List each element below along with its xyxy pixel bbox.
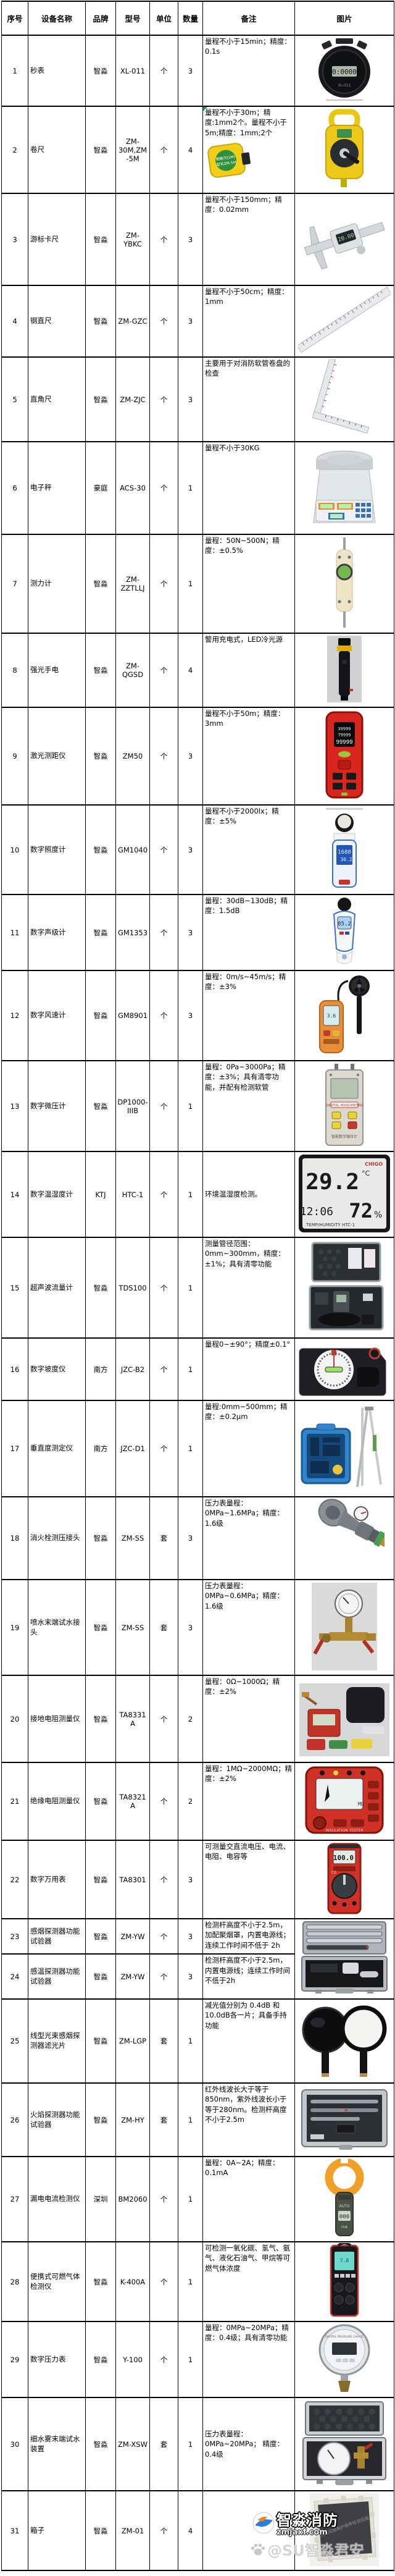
table-row: 27漏电电流检测仪深圳BM2060个1量程：0A~2A；精度：0.1mAAUTO… xyxy=(2,2157,394,2242)
cell-qty: 3 xyxy=(178,1580,203,1675)
cell-note: 量程不小于30m；精度:1mm2个。量程不小于5m;精度：1mm;2个钢卷尺(5… xyxy=(203,106,295,193)
note-text: 检测杆高度不小于2.5m，加配聚烟罩，内置电源线；连续工作时间不低于 2h xyxy=(205,1920,293,1950)
cell-photo xyxy=(295,1400,394,1497)
cell-photo: AUTO000mA xyxy=(295,2157,394,2242)
col-header-model: 型号 xyxy=(116,1,150,35)
header-row: 序号设备名称品牌型号单位数量备注图片 xyxy=(2,1,394,35)
cell-model: HTC-1 xyxy=(116,1151,150,1237)
cell-name: 绝缘电阻测量仪 xyxy=(28,1762,86,1840)
cell-name: 数字万用表 xyxy=(28,1840,86,1919)
svg-text:100.0: 100.0 xyxy=(333,1854,354,1862)
cell-qty: 3 xyxy=(178,1840,203,1919)
cell-note xyxy=(203,2491,295,2570)
note-text: 量程不小于30m；精度:1mm2个。量程不小于5m;精度：1mm;2个 xyxy=(205,107,293,138)
col-header-num: 序号 xyxy=(2,1,28,35)
cell-note: 压力表量程：0MPa~0.6MPa；精度：1.6级 xyxy=(203,1580,295,1675)
table-row: 29数字压力表智淼Y-100个1量程：0MPa~20MPa；精度：0.4级；具有… xyxy=(2,2321,394,2397)
cell-note: 可测量交直流电压、电流、电阻、电容等 xyxy=(203,1840,295,1919)
cell-note: 量程不小于50cm；精度：1mm xyxy=(203,285,295,357)
cell-model: ZM-HY xyxy=(116,2083,150,2157)
table-row: 14数字温湿度计KTJHTC-1个1环境温湿度检测。CHIGO29.2°C12:… xyxy=(2,1151,394,1237)
table-row: 4钢直尺智淼ZM-GZC个3量程不小于50cm；精度：1mm xyxy=(2,285,394,357)
svg-text:TEMP/HUMIDITY HTC-1: TEMP/HUMIDITY HTC-1 xyxy=(306,1223,355,1227)
cell-name: 数字坡度仪 xyxy=(28,1338,86,1400)
cell-qty: 1 xyxy=(178,2321,203,2397)
cell-num: 3 xyxy=(2,193,28,285)
cell-unit: 个 xyxy=(150,805,178,894)
cell-model: TA8331A xyxy=(116,1675,150,1762)
cell-brand: 智淼 xyxy=(86,1954,116,1999)
svg-text:AUTO: AUTO xyxy=(339,2204,350,2208)
cell-brand: 南方 xyxy=(86,1338,116,1400)
flashlight-photo xyxy=(322,634,367,704)
board-box-photo: 消防设施维护保养检测设备 xyxy=(307,2492,381,2567)
cell-photo xyxy=(295,442,394,534)
note-text: 压力表量程：0MPa~0.6MPa；精度：1.6级 xyxy=(205,1581,293,1611)
cell-num: 21 xyxy=(2,1762,28,1840)
cell-num: 16 xyxy=(2,1338,28,1400)
cell-unit: 个 xyxy=(150,2157,178,2242)
lux-meter-photo: 168030.2 xyxy=(322,807,367,891)
inclinometer-photo xyxy=(298,1340,391,1397)
cell-name: 线型光束感烟探测器滤光片 xyxy=(28,1999,86,2083)
svg-text:30.2: 30.2 xyxy=(340,857,352,862)
cell-qty: 1 xyxy=(178,1061,203,1151)
cell-unit: 个 xyxy=(150,1400,178,1497)
table-row: 3游标卡尺智淼ZM-YBKC个3量程不小于150mm；精度：0.02mm20.0… xyxy=(2,193,394,285)
cell-num: 15 xyxy=(2,1237,28,1338)
svg-text:MΩ: MΩ xyxy=(358,1801,364,1807)
note-text: 量程：0Pa~3000Pa；精度：±3%；具有清零功能，并配有检测软管 xyxy=(205,1062,293,1092)
svg-text:1680: 1680 xyxy=(338,849,351,856)
cell-brand: 智淼 xyxy=(86,1580,116,1675)
cell-brand: 智淼 xyxy=(86,285,116,357)
cell-brand: 智淼 xyxy=(86,35,116,106)
ruler-photo xyxy=(298,287,391,353)
table-row: 21绝缘电阻测量仪智淼TA8321A个2量程：1MΩ~2000MΩ；精度：±2%… xyxy=(2,1762,394,1840)
flow-case-photo xyxy=(301,1240,388,1333)
cell-unit: 个 xyxy=(150,894,178,970)
cell-note: 量程不小于2000lx；精度：±5% xyxy=(203,805,295,894)
cell-model: ZM-QGSD xyxy=(116,633,150,707)
cell-note: 主要用于对消防软管卷盘的检查 xyxy=(203,357,295,442)
cell-unit: 个 xyxy=(150,106,178,193)
cell-unit: 个 xyxy=(150,1237,178,1338)
cell-note: 量程：1MΩ~2000MΩ；精度：±2% xyxy=(203,1762,295,1840)
cell-brand: 智淼 xyxy=(86,2321,116,2397)
cell-num: 11 xyxy=(2,894,28,970)
cell-photo: MΩINSULATION TESTER xyxy=(295,1762,394,1840)
cell-brand: 智淼 xyxy=(86,106,116,193)
cell-unit: 套 xyxy=(150,2397,178,2491)
col-header-photo: 图片 xyxy=(295,1,394,35)
cell-num: 30 xyxy=(2,2397,28,2491)
table-row: 17垂直度测定仪南方JZC-D1个1量程:0mm~500mm；精度：±0.2μm xyxy=(2,1400,394,1497)
cell-brand: 智淼 xyxy=(86,633,116,707)
svg-text:99999: 99999 xyxy=(336,739,352,746)
table-row: 18消火栓测压接头智淼ZM-SS套3压力表量程：0MPa~1.6MPa；精度：1… xyxy=(2,1497,394,1580)
table-row: 30细水雾末端试水装置智淼ZM-XSW套1压力表量程：0MPa~20MPa； 精… xyxy=(2,2397,394,2491)
cell-name: 钢直尺 xyxy=(28,285,86,357)
cell-model: BM2060 xyxy=(116,2157,150,2242)
svg-text:3.6: 3.6 xyxy=(327,1013,336,1019)
cell-brand: 智淼 xyxy=(86,2242,116,2321)
svg-text:72: 72 xyxy=(349,1199,373,1223)
cell-model: ZM-LGP xyxy=(116,1999,150,2083)
cell-name: 感温探测器功能试验器 xyxy=(28,1954,86,1999)
cell-qty: 1 xyxy=(178,2157,203,2242)
cell-brand: 智淼 xyxy=(86,970,116,1061)
cell-name: 数字压力表 xyxy=(28,2321,86,2397)
cell-note: 减光值分别为 0.4dB 和10.0dB各一片；具备手持功能 xyxy=(203,1999,295,2083)
xsw-case-photo xyxy=(298,2399,391,2487)
table-row: 5直角尺智淼ZM-ZJC个3主要用于对消防软管卷盘的检查 xyxy=(2,357,394,442)
note-text: 主要用于对消防软管卷盘的检查 xyxy=(205,358,293,379)
cell-num: 2 xyxy=(2,106,28,193)
table-row: 9激光测距仪智淼ZM50个3量程不小于50m；精度：3mm39999799999… xyxy=(2,707,394,805)
caliper-photo: 20.00 xyxy=(300,201,389,276)
table-row: 31箱子智淼ZM-01个4消防设施维护保养检测设备 xyxy=(2,2491,394,2570)
cell-name: 电子秤 xyxy=(28,442,86,534)
note-text: 减光值分别为 0.4dB 和10.0dB各一片；具备手持功能 xyxy=(205,2000,293,2031)
table-row: 1秒表智淼XL-011个3量程不小于15min；精度：0.1s0:0000XL-… xyxy=(2,35,394,106)
cell-unit: 个 xyxy=(150,1675,178,1762)
col-header-note: 备注 xyxy=(203,1,295,35)
cell-photo: 85.2 xyxy=(295,894,394,970)
cell-qty: 2 xyxy=(178,1762,203,1840)
tape-small-photo: 钢卷尺(5M)型号ZM-5M xyxy=(205,140,253,180)
cell-name: 火焰探测器功能试验器 xyxy=(28,2083,86,2157)
col-header-brand: 品牌 xyxy=(86,1,116,35)
cell-qty: 3 xyxy=(178,1919,203,1954)
cell-note: 量程：50N~500N；精度：±0.5% xyxy=(203,534,295,633)
cell-note: 压力表量程：0MPa~20MPa； 精度：0.4级 xyxy=(203,2397,295,2491)
cell-photo: DIGITAL MANOMETER智能数字微压计 xyxy=(295,1061,394,1151)
note-text: 量程：1MΩ~2000MΩ；精度：±2% xyxy=(205,1764,293,1784)
note-text: 测量管径范围：0mm~300mm，精度：±1%；具有清零功能 xyxy=(205,1239,293,1269)
cell-qty: 3 xyxy=(178,1497,203,1580)
cell-model: ZM50 xyxy=(116,707,150,805)
filters-photo xyxy=(298,2000,391,2079)
cell-name: 垂直度测定仪 xyxy=(28,1400,86,1497)
cell-photo: 0:0000XL-011 xyxy=(295,35,394,106)
svg-text:7.8: 7.8 xyxy=(340,2258,349,2263)
cell-qty: 1 xyxy=(178,2397,203,2491)
svg-text:XL-011: XL-011 xyxy=(338,83,351,88)
cell-note: 量程不小于50m；精度：3mm xyxy=(203,707,295,805)
cell-qty: 1 xyxy=(178,534,203,633)
cell-note: 量程：0A~2A；精度：0.1mA xyxy=(203,2157,295,2242)
table-row: 25线型光束感烟探测器滤光片智淼ZM-LGP套1减光值分别为 0.4dB 和10… xyxy=(2,1999,394,2083)
cell-note: 量程：0m/s~45m/s；精度：±3% xyxy=(203,970,295,1061)
table-row: 11数字声级计智淼GM1353个3量程：30dB~130dB；精度：1.5dB8… xyxy=(2,894,394,970)
cell-brand: 智淼 xyxy=(86,1999,116,2083)
cell-brand: 智淼 xyxy=(86,805,116,894)
cell-num: 26 xyxy=(2,2083,28,2157)
cell-note: 红外线波长大于等于850nm，紫外线波长小于等于280nm。检测杆高度不小于2.… xyxy=(203,2083,295,2157)
note-text: 环境温湿度检测。 xyxy=(205,1189,293,1199)
cell-unit: 套 xyxy=(150,1580,178,1675)
cell-brand: 智淼 xyxy=(86,2491,116,2570)
cell-model: ACS-30 xyxy=(116,442,150,534)
cell-brand: 智淼 xyxy=(86,1762,116,1840)
cell-photo xyxy=(295,1675,394,1762)
table-row: 16数字坡度仪南方JZC-B2个1量程0~±90°；精度±0.1° xyxy=(2,1338,394,1400)
cell-note: 量程:0mm~500mm；精度：±0.2μm xyxy=(203,1400,295,1497)
cell-name: 数字照度计 xyxy=(28,805,86,894)
cell-name: 激光测距仪 xyxy=(28,707,86,805)
cell-model: GM1353 xyxy=(116,894,150,970)
table-row: 15超声波流量计智淼TDS100个1测量管径范围：0mm~300mm，精度：±1… xyxy=(2,1237,394,1338)
note-text: 量程：0MPa~20MPa；精度：0.4级；具有清零功能 xyxy=(205,2323,293,2343)
table-row: 22数字万用表智淼TA8301个3可测量交直流电压、电流、电阻、电容等100.0… xyxy=(2,1840,394,1919)
cell-photo xyxy=(295,633,394,707)
cell-model: GM8901 xyxy=(116,970,150,1061)
cell-photo: 3.6 xyxy=(295,970,394,1061)
cell-brand: 智淼 xyxy=(86,534,116,633)
cell-qty: 4 xyxy=(178,633,203,707)
note-text: 量程不小于30KG xyxy=(205,443,293,453)
cell-brand: KTJ xyxy=(86,1151,116,1237)
cell-unit: 个 xyxy=(150,1338,178,1400)
cell-note: 检测杆高度不小于2.5m，加配聚烟罩，内置电源线；连续工作时间不低于 2h xyxy=(203,1919,295,1954)
note-text: 量程不小于50cm；精度：1mm xyxy=(205,287,293,307)
table-row: 28便携式可燃气体检测仪智淼K-400A个1可检测一氧化碳、氢气、氨气、液化石油… xyxy=(2,2242,394,2321)
cell-num: 18 xyxy=(2,1497,28,1580)
cell-model: JZC-B2 xyxy=(116,1338,150,1400)
cell-qty: 1 xyxy=(178,1400,203,1497)
cell-note: 压力表量程：0MPa~1.6MPa；精度：1.6级 xyxy=(203,1497,295,1580)
note-text: 压力表量程：0MPa~1.6MPa；精度：1.6级 xyxy=(205,1498,293,1528)
cell-unit: 个 xyxy=(150,442,178,534)
cell-photo: 消防设施维护保养检测设备 xyxy=(295,2491,394,2570)
cell-num: 4 xyxy=(2,285,28,357)
cell-name: 强光手电 xyxy=(28,633,86,707)
cell-unit: 个 xyxy=(150,285,178,357)
cell-name: 卷尺 xyxy=(28,106,86,193)
cell-photo: DIGITAL PRESSURE GAUGE xyxy=(295,2321,394,2397)
table-row: 12数字风速计智淼GM8901个3量程：0m/s~45m/s；精度：±3%3.6 xyxy=(2,970,394,1061)
svg-text:INSULATION TESTER: INSULATION TESTER xyxy=(325,1829,363,1833)
cell-model: JZC-D1 xyxy=(116,1400,150,1497)
cell-num: 28 xyxy=(2,2242,28,2321)
cell-note: 量程不小于150mm；精度：0.02mm xyxy=(203,193,295,285)
vertical-kit-photo xyxy=(298,1404,391,1491)
cell-qty: 1 xyxy=(178,2242,203,2321)
cell-photo: 100.0CE xyxy=(295,1840,394,1919)
cell-num: 1 xyxy=(2,35,28,106)
note-text: 红外线波长大于等于850nm，紫外线波长小于等于280nm。检测杆高度不小于2.… xyxy=(205,2084,293,2124)
cell-unit: 个 xyxy=(150,707,178,805)
cell-unit: 个 xyxy=(150,633,178,707)
cell-brand: 深圳 xyxy=(86,2157,116,2242)
svg-text:CE: CE xyxy=(331,1871,336,1875)
cell-qty: 4 xyxy=(178,2491,203,2570)
svg-text:DIGITAL PRESSURE GAUGE: DIGITAL PRESSURE GAUGE xyxy=(325,2335,364,2339)
tape-reel-photo xyxy=(315,109,374,189)
svg-text:85.2: 85.2 xyxy=(338,921,351,927)
note-text: 警用充电式，LED冷光源 xyxy=(205,634,293,644)
cell-unit: 个 xyxy=(150,2321,178,2397)
cell-model: TDS100 xyxy=(116,1237,150,1338)
table-row: 13数字微压计智淼DP1000-IIIB个1量程：0Pa~3000Pa；精度：±… xyxy=(2,1061,394,1151)
square-ruler-photo xyxy=(303,359,386,438)
cell-photo: 168030.2 xyxy=(295,805,394,894)
note-text: 量程：0m/s~45m/s；精度：±3% xyxy=(205,972,293,992)
cell-unit: 个 xyxy=(150,2491,178,2570)
table-row: 10数字照度计智淼GM1040个3量程不小于2000lx；精度：±5%16803… xyxy=(2,805,394,894)
cell-num: 5 xyxy=(2,357,28,442)
cell-model: ZM-ZJC xyxy=(116,357,150,442)
cell-model: ZM-SS xyxy=(116,1497,150,1580)
cell-model: ZM-01 xyxy=(116,2491,150,2570)
cell-model: ZM-YW xyxy=(116,1954,150,1999)
clamp-meter-photo: AUTO000mA xyxy=(317,2158,372,2238)
cell-qty: 3 xyxy=(178,970,203,1061)
table-row: 8强光手电智淼ZM-QGSD个4警用充电式，LED冷光源 xyxy=(2,633,394,707)
micro-pressure-photo: DIGITAL MANOMETER智能数字微压计 xyxy=(315,1063,373,1148)
cell-unit: 个 xyxy=(150,193,178,285)
cell-name: 消火栓测压接头 xyxy=(28,1497,86,1580)
cell-brand: 智淼 xyxy=(86,1840,116,1919)
cell-model: ZM-SS xyxy=(116,1580,150,1675)
cell-name: 数字微压计 xyxy=(28,1061,86,1151)
note-text: 量程不小于50m；精度：3mm xyxy=(205,709,293,729)
cell-name: 喷水末端试水接头 xyxy=(28,1580,86,1675)
cell-photo xyxy=(295,534,394,633)
cell-name: 直角尺 xyxy=(28,357,86,442)
cell-name: 漏电电流检测仪 xyxy=(28,2157,86,2242)
cell-num: 8 xyxy=(2,633,28,707)
note-text: 检测杆高度不小于2.5m，内置电源线；连续工作时间不低于2h xyxy=(205,1955,293,1985)
cell-unit: 个 xyxy=(150,1762,178,1840)
cell-brand: 智淼 xyxy=(86,1919,116,1954)
cell-unit: 个 xyxy=(150,357,178,442)
cell-model: ZM-30M,ZM-5M xyxy=(116,106,150,193)
svg-text:39999: 39999 xyxy=(338,726,351,731)
cell-brand: 豪庭 xyxy=(86,442,116,534)
cell-name: 游标卡尺 xyxy=(28,193,86,285)
cell-model: ZM-GZC xyxy=(116,285,150,357)
table-row: 2卷尺智淼ZM-30M,ZM-5M个4量程不小于30m；精度:1mm2个。量程不… xyxy=(2,106,394,193)
cell-name: 细水雾末端试水装置 xyxy=(28,2397,86,2491)
cell-photo: 7.8 xyxy=(295,2242,394,2321)
note-text: 量程：30dB~130dB；精度：1.5dB xyxy=(205,896,293,916)
multimeter-photo: 100.0CE xyxy=(321,1842,368,1916)
svg-text:0:0000: 0:0000 xyxy=(332,68,357,76)
svg-text:%: % xyxy=(374,1210,382,1220)
cell-note: 环境温湿度检测。 xyxy=(203,1151,295,1237)
cell-model: TA8301 xyxy=(116,1840,150,1919)
cell-model: Y-100 xyxy=(116,2321,150,2397)
cell-model: K-400A xyxy=(116,2242,150,2321)
cell-unit: 套 xyxy=(150,1497,178,1580)
cell-model: ZM-YW xyxy=(116,1919,150,1954)
cell-note: 量程：0MPa~20MPa；精度：0.4级；具有清零功能 xyxy=(203,2321,295,2397)
cell-model: TA8321A xyxy=(116,1762,150,1840)
cell-photo xyxy=(295,1580,394,1675)
cell-qty: 3 xyxy=(178,894,203,970)
cell-photo xyxy=(295,357,394,442)
note-text: 量程不小于15min；精度：0.1s xyxy=(205,36,293,57)
cell-num: 20 xyxy=(2,1675,28,1762)
cell-unit: 个 xyxy=(150,1151,178,1237)
cell-qty: 1 xyxy=(178,1999,203,2083)
scale-photo xyxy=(307,444,381,530)
stopwatch-photo: 0:0000XL-011 xyxy=(317,37,372,103)
cell-note: 量程：0Pa~3000Pa；精度：±3%；具有清零功能，并配有检测软管 xyxy=(203,1061,295,1151)
cell-note: 量程：30dB~130dB；精度：1.5dB xyxy=(203,894,295,970)
cell-brand: 智淼 xyxy=(86,707,116,805)
sound-meter-photo: 85.2 xyxy=(324,896,365,967)
cell-num: 31 xyxy=(2,2491,28,2570)
cell-unit: 套 xyxy=(150,1999,178,2083)
cell-num: 23 xyxy=(2,1919,28,1954)
cell-name: 箱子 xyxy=(28,2491,86,2570)
table-row: 26火焰探测器功能试验器智淼ZM-HY套1红外线波长大于等于850nm，紫外线波… xyxy=(2,2083,394,2157)
cell-photo xyxy=(295,106,394,193)
svg-text:79999: 79999 xyxy=(338,733,351,738)
cell-brand: 智淼 xyxy=(86,1675,116,1762)
cell-model: ZM-XSW xyxy=(116,2397,150,2491)
cell-photo xyxy=(295,1497,394,1580)
note-text: 量程不小于2000lx；精度：±5% xyxy=(205,806,293,827)
cell-num: 22 xyxy=(2,1840,28,1919)
svg-text:12:06: 12:06 xyxy=(300,1205,333,1218)
anemometer-photo: 3.6 xyxy=(310,972,379,1056)
cell-qty: 1 xyxy=(178,1338,203,1400)
note-text: 量程不小于150mm；精度：0.02mm xyxy=(205,195,293,215)
cell-name: 感烟探测器功能试验器 xyxy=(28,1919,86,1954)
cell-photo xyxy=(295,1919,394,1999)
cell-qty: 3 xyxy=(178,193,203,285)
cell-model: DP1000-IIIB xyxy=(116,1061,150,1151)
svg-text:智能数字微压计: 智能数字微压计 xyxy=(331,1134,357,1139)
cell-qty: 3 xyxy=(178,707,203,805)
note-text: 量程:0mm~500mm；精度：±0.2μm xyxy=(205,1402,293,1422)
note-text: 量程：50N~500N；精度：±0.5% xyxy=(205,536,293,556)
cell-note: 量程0~±90°；精度±0.1° xyxy=(203,1338,295,1400)
equipment-table: 序号设备名称品牌型号单位数量备注图片 1秒表智淼XL-011个3量程不小于15m… xyxy=(1,1,394,2571)
cell-photo xyxy=(295,1999,394,2083)
cell-model: ZM-ZZTLLJ xyxy=(116,534,150,633)
cell-num: 25 xyxy=(2,1999,28,2083)
insulation-tester-photo: MΩINSULATION TESTER xyxy=(301,1764,388,1837)
cell-note: 检测杆高度不小于2.5m，内置电源线；连续工作时间不低于2h xyxy=(203,1954,295,1999)
note-text: 压力表量程：0MPa~20MPa； 精度：0.4级 xyxy=(205,2429,293,2459)
cell-photo xyxy=(295,2397,394,2491)
svg-text:DIGITAL MANOMETER: DIGITAL MANOMETER xyxy=(326,1104,362,1108)
cell-qty: 2 xyxy=(178,1675,203,1762)
cell-num: 19 xyxy=(2,1580,28,1675)
cell-unit: 个 xyxy=(150,1954,178,1999)
svg-text:000: 000 xyxy=(339,2214,349,2220)
note-text: 量程：0A~2A；精度：0.1mA xyxy=(205,2158,293,2178)
cell-name: 数字声级计 xyxy=(28,894,86,970)
cell-name: 秒表 xyxy=(28,35,86,106)
cell-qty: 1 xyxy=(178,2083,203,2157)
cell-photo: 20.00 xyxy=(295,193,394,285)
cell-note: 警用充电式，LED冷光源 xyxy=(203,633,295,707)
cell-num: 12 xyxy=(2,970,28,1061)
force-gauge-photo xyxy=(328,536,360,629)
cell-photo xyxy=(295,1338,394,1400)
cell-name: 便携式可燃气体检测仪 xyxy=(28,2242,86,2321)
cell-qty: 1 xyxy=(178,1151,203,1237)
cell-qty: 3 xyxy=(178,285,203,357)
cell-note: 量程：0Ω~1000Ω；精度：±2% xyxy=(203,1675,295,1762)
cell-num: 10 xyxy=(2,805,28,894)
